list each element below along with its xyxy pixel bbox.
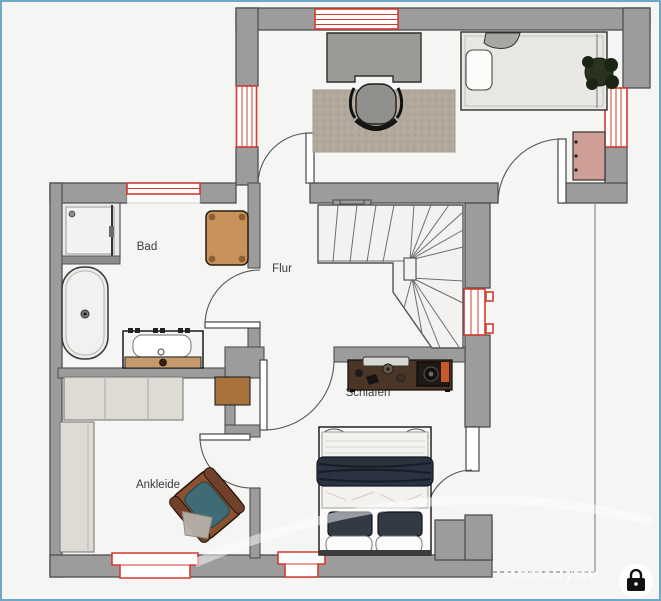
staircase <box>318 205 463 348</box>
bathroom-stool <box>206 211 248 265</box>
room-label-flur: Flur <box>272 263 292 275</box>
single-bed-pillow <box>466 50 492 90</box>
watermark-text: HomeByMe <box>505 566 599 583</box>
door-top-room-terrace <box>498 139 566 203</box>
room-label-ankleide: Ankleide <box>136 479 180 491</box>
floorplan-drawing: Schlafen <box>0 0 661 601</box>
bed-blanket <box>317 457 433 486</box>
terrace-outline <box>493 203 595 572</box>
washbasin-vanity <box>123 328 203 368</box>
bed-cushion-right <box>378 512 422 536</box>
floorplan-canvas: Schlafen <box>0 0 661 601</box>
window-top-room-top <box>315 9 398 29</box>
shower-head <box>69 211 75 217</box>
room-label-bad: Bad <box>137 241 157 253</box>
door-top-room-hall <box>258 133 314 183</box>
window-bay-ankleide <box>112 553 198 578</box>
record-player <box>417 362 449 386</box>
shower <box>62 203 120 264</box>
shower-ledge <box>62 256 120 264</box>
stair-newel <box>404 258 416 280</box>
bathtub <box>62 267 108 359</box>
window-stairs-right <box>464 289 493 335</box>
door-bad <box>205 270 260 328</box>
window-top-room-right <box>605 88 627 147</box>
plant <box>582 56 619 90</box>
window-bad-top <box>127 183 200 203</box>
door-schlafen <box>260 360 334 430</box>
window-bay-schlafen <box>278 552 325 577</box>
pink-dresser <box>573 132 605 180</box>
ankleide-wardrobe <box>60 422 94 552</box>
desk-chair <box>350 84 401 129</box>
sideboard <box>348 357 452 392</box>
ankleide-wood-cabinet <box>215 377 250 405</box>
desk <box>327 33 421 82</box>
window-top-room-left <box>237 86 257 147</box>
double-bed <box>317 427 433 555</box>
ankleide-cabinet-top <box>64 377 183 420</box>
